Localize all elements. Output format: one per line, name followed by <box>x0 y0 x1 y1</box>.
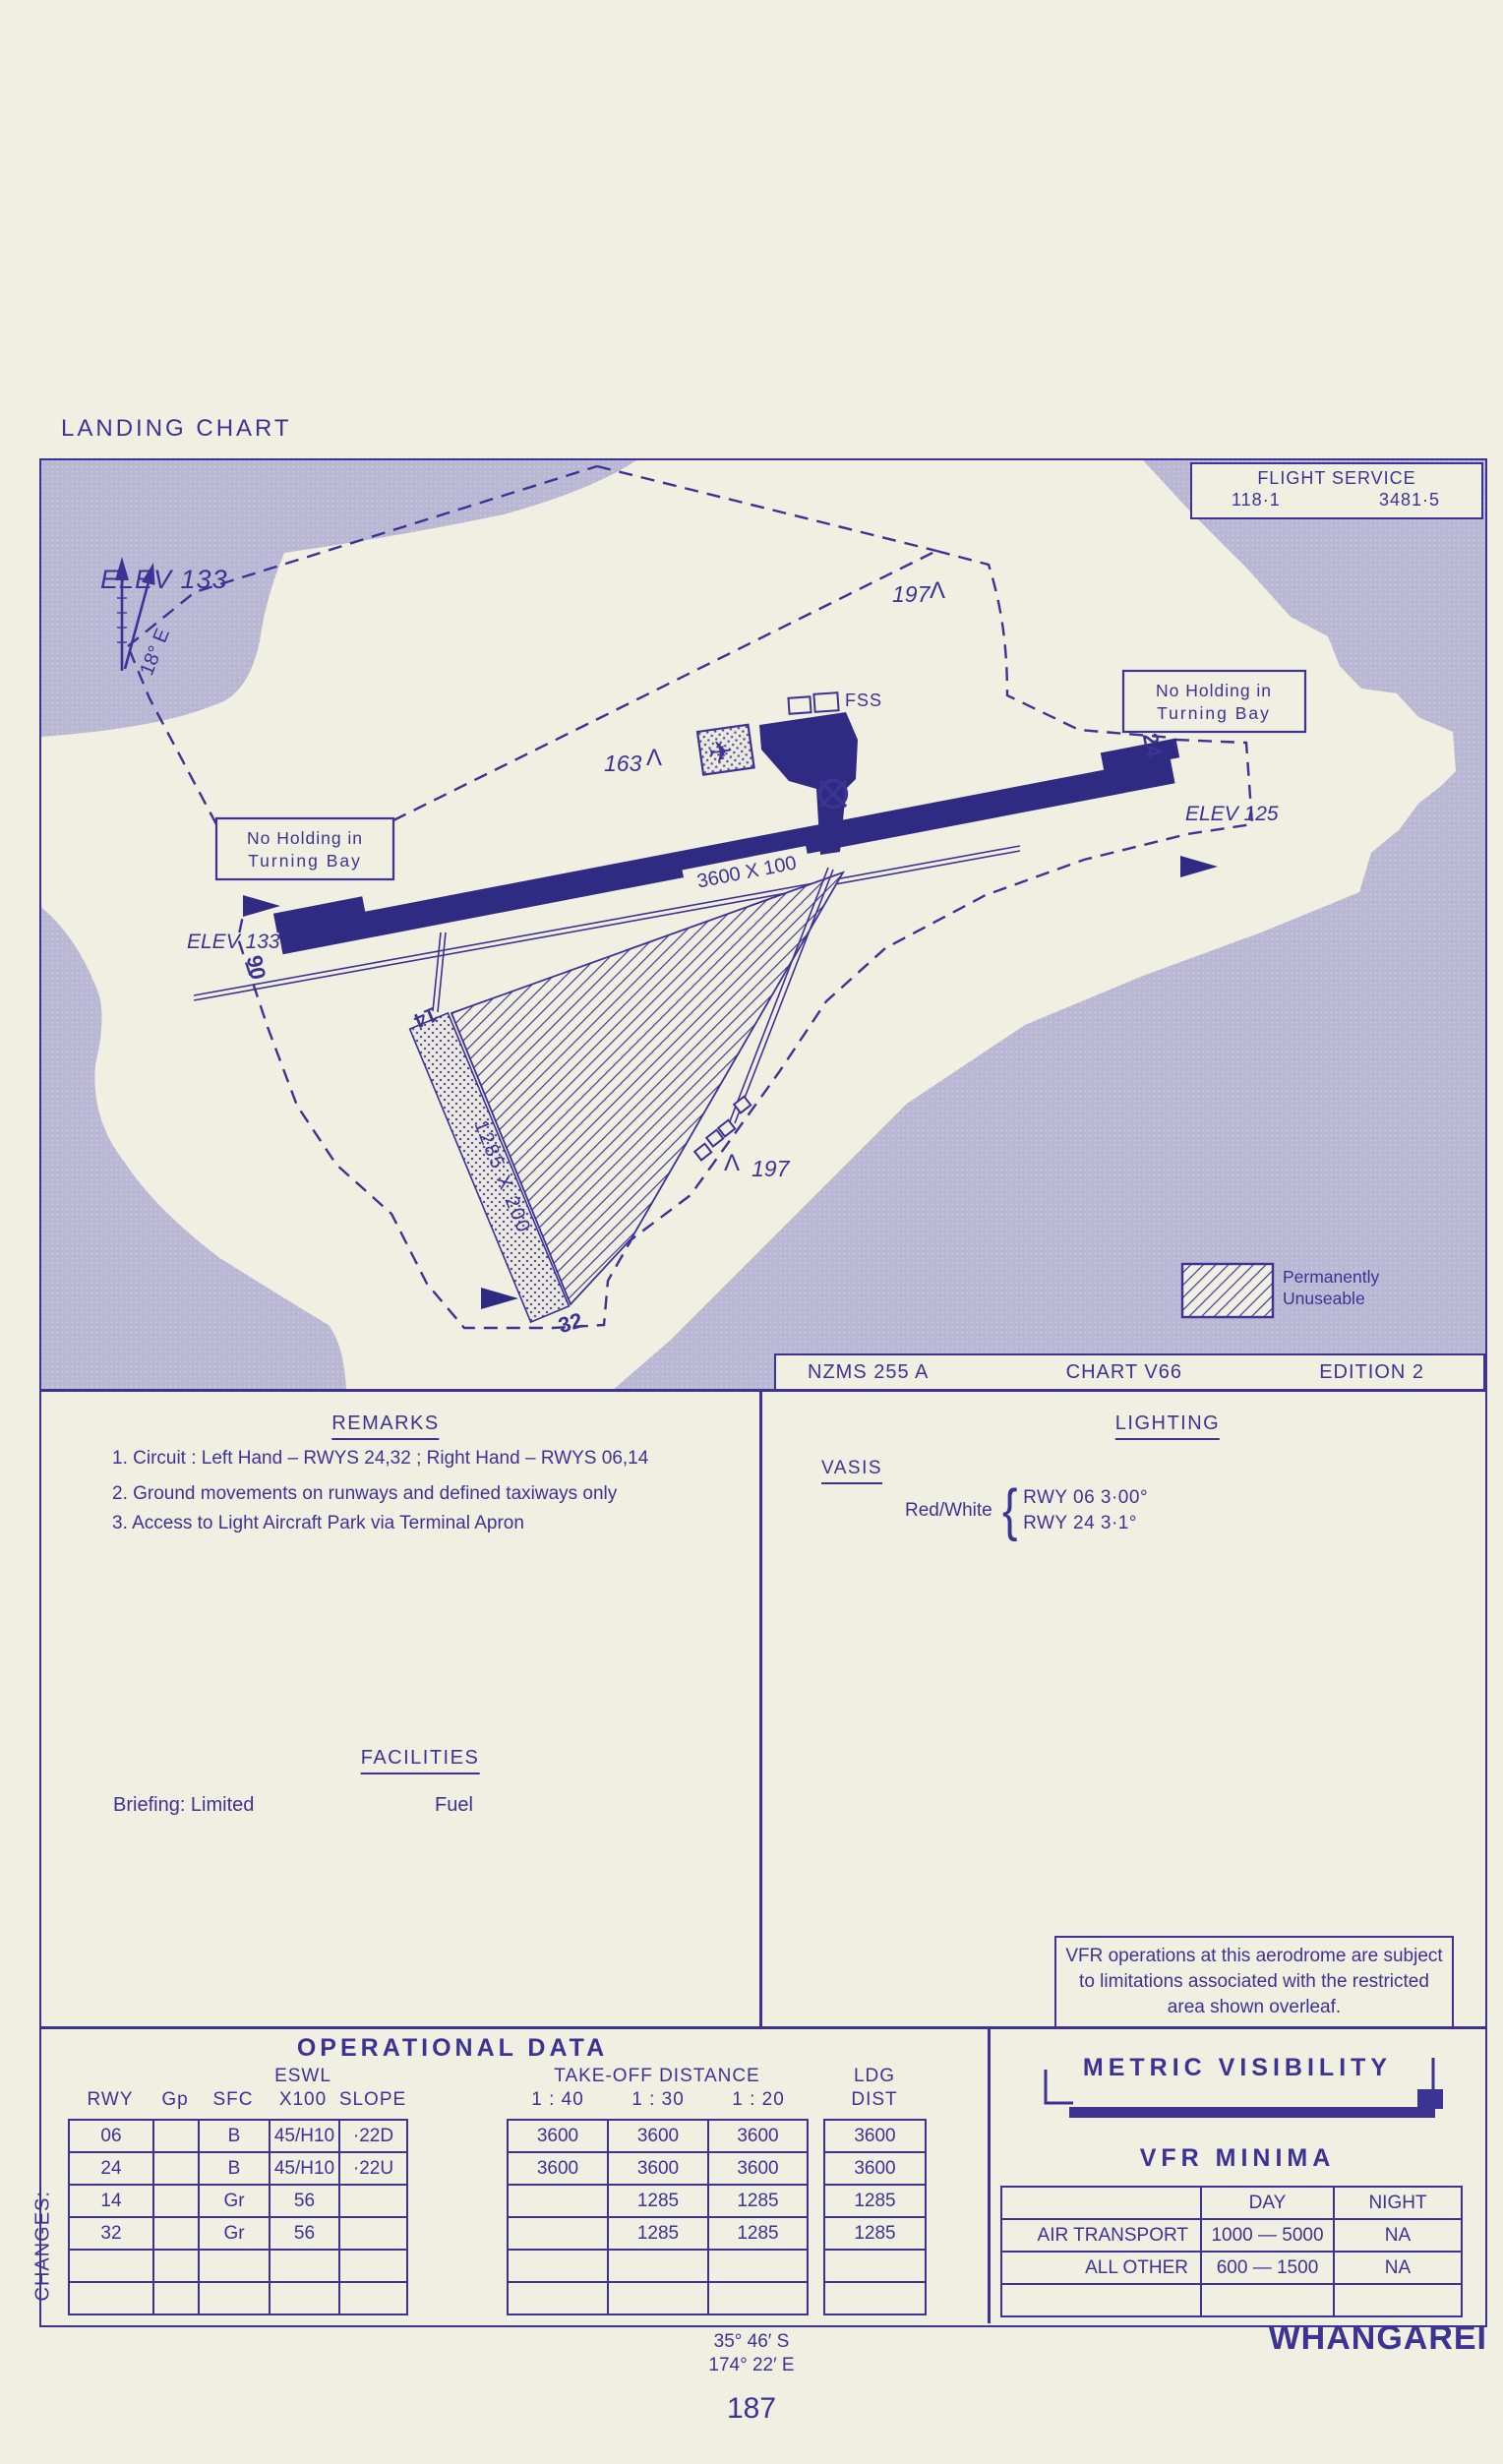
col-eswl2: X100 <box>279 2089 327 2111</box>
chart-frame: FSS ✈ 197 Λ 163 Λ Λ 197 <box>39 458 1487 2327</box>
col-gp: Gp <box>161 2089 188 2111</box>
table-row <box>1001 2284 1462 2316</box>
table-row: 06B45/H10·22D <box>69 2120 407 2152</box>
brace-glyph: { <box>1002 1485 1018 1536</box>
landing-dist-table: 3600 3600 1285 1285 <box>823 2119 927 2315</box>
table-row <box>69 2282 407 2314</box>
table-row: 12851285 <box>508 2217 808 2250</box>
col-tod-20: 1 : 20 <box>732 2089 785 2111</box>
vfr-minima-table: DAYNIGHT AIR TRANSPORT1000 — 5000NA ALL … <box>1000 2186 1463 2317</box>
obstruction-197-top: 197 <box>892 581 932 607</box>
elev-rwy06: ELEV 133 <box>187 931 280 953</box>
vfr-minima-title: VFR MINIMA <box>1140 2144 1336 2173</box>
flight-service-hf: 3481·5 <box>1379 490 1440 511</box>
fss-label: FSS <box>845 691 882 710</box>
arrow-rwy24 <box>1180 856 1218 877</box>
table-row <box>824 2250 926 2282</box>
vfr-note: VFR operations at this aerodrome are sub… <box>1054 1936 1454 2028</box>
light-aircraft-park: ✈ <box>697 725 754 775</box>
rwy06-label: 06 <box>242 953 271 982</box>
table-row: 360036003600 <box>508 2120 808 2152</box>
obstruction-197-low-icon: Λ <box>724 1150 740 1176</box>
chart-number: CHART V66 <box>1066 1361 1182 1384</box>
runway-table: 06B45/H10·22D 24B45/H10·22U 14Gr56 32Gr5… <box>68 2119 408 2315</box>
facilities-fuel: Fuel <box>435 1794 473 1817</box>
obstruction-163-icon: Λ <box>646 745 662 771</box>
takeoff-table: 360036003600 360036003600 12851285 12851… <box>507 2119 809 2315</box>
obstruction-163: 163 <box>604 751 642 776</box>
table-row: 32Gr56 <box>69 2217 407 2250</box>
svg-text:No Holding in: No Holding in <box>247 828 363 848</box>
table-row <box>824 2282 926 2314</box>
table-row: 3600 <box>824 2152 926 2185</box>
col-sfc: SFC <box>213 2089 254 2111</box>
table-row: 1285 <box>824 2217 926 2250</box>
lighting-title: LIGHTING <box>1115 1412 1220 1440</box>
table-row: ALL OTHER600 — 1500NA <box>1001 2252 1462 2284</box>
flight-service-box: FLIGHT SERVICE 118·1 3481·5 <box>1190 462 1483 519</box>
no-holding-box-west: No Holding in Turning Bay <box>216 818 393 879</box>
col-tod-30: 1 : 30 <box>631 2089 685 2111</box>
table-row: 1285 <box>824 2185 926 2217</box>
remarks-item-1: 1. Circuit : Left Hand – RWYS 24,32 ; Ri… <box>112 1448 648 1470</box>
aerodrome-map: FSS ✈ 197 Λ 163 Λ Λ 197 <box>41 460 1485 1391</box>
table-row: 24B45/H10·22U <box>69 2152 407 2185</box>
elev-aerodrome: ELEV 133 <box>100 565 228 594</box>
table-row <box>508 2250 808 2282</box>
facilities-title: FACILITIES <box>361 1747 480 1774</box>
col-eswl: ESWL <box>274 2066 331 2087</box>
vasis-label: VASIS <box>821 1458 882 1484</box>
table-row: 3600 <box>824 2120 926 2152</box>
table-row: DAYNIGHT <box>1001 2187 1462 2219</box>
rwy32-label: 32 <box>556 1307 585 1338</box>
page-title: LANDING CHART <box>61 415 292 443</box>
aircraft-icon: ✈ <box>706 735 735 770</box>
page-number: 187 <box>0 2392 1503 2426</box>
svg-text:No Holding in: No Holding in <box>1156 681 1272 700</box>
remarks-item-3: 3. Access to Light Aircraft Park via Ter… <box>112 1513 524 1534</box>
flight-service-vhf: 118·1 <box>1232 490 1281 511</box>
col-dist: DIST <box>851 2089 897 2111</box>
table-row: AIR TRANSPORT1000 — 5000NA <box>1001 2219 1462 2252</box>
metric-visibility-bracket <box>989 2042 1451 2131</box>
remarks-title: REMARKS <box>331 1412 439 1440</box>
chart-series: NZMS 255 A <box>808 1361 929 1384</box>
facilities-briefing: Briefing: Limited <box>113 1794 254 1817</box>
col-takeoff: TAKE-OFF DISTANCE <box>554 2066 759 2087</box>
no-holding-box-east: No Holding in Turning Bay <box>1123 671 1305 732</box>
col-night: NIGHT <box>1334 2187 1462 2219</box>
arrow-rwy32 <box>481 1288 518 1309</box>
remarks-item-2: 2. Ground movements on runways and defin… <box>112 1483 617 1505</box>
table-row: 12851285 <box>508 2185 808 2217</box>
obstruction-197-top-icon: Λ <box>930 577 945 604</box>
vasis-rwy24: RWY 24 3·1° <box>1023 1511 1148 1536</box>
col-tod-40: 1 : 40 <box>531 2089 584 2111</box>
svg-text:Turning Bay: Turning Bay <box>248 851 362 871</box>
vasis-color: Red/White <box>905 1500 992 1522</box>
table-row <box>69 2250 407 2282</box>
elev-rwy24: ELEV 125 <box>1185 803 1279 825</box>
vasis-detail: Red/White { RWY 06 3·00° RWY 24 3·1° <box>905 1485 1148 1536</box>
chart-id-strip: NZMS 255 A CHART V66 EDITION 2 <box>774 1353 1485 1391</box>
airport-name: WHANGAREI <box>1269 2319 1487 2358</box>
operational-data-title: OPERATIONAL DATA <box>297 2034 608 2063</box>
svg-text:Unuseable: Unuseable <box>1283 1289 1365 1308</box>
vasis-rwy06: RWY 06 3·00° <box>1023 1485 1148 1511</box>
coords-lon: 174° 22′ E <box>0 2355 1503 2376</box>
svg-text:Turning Bay: Turning Bay <box>1157 703 1271 723</box>
table-row: 14Gr56 <box>69 2185 407 2217</box>
obstruction-197-low: 197 <box>751 1156 791 1181</box>
table-row <box>508 2282 808 2314</box>
col-slope: SLOPE <box>339 2089 406 2111</box>
flight-service-title: FLIGHT SERVICE <box>1192 468 1481 489</box>
col-ldg: LDG <box>854 2066 895 2087</box>
fss-buildings <box>788 692 838 714</box>
chart-edition: EDITION 2 <box>1319 1361 1424 1384</box>
table-row: 360036003600 <box>508 2152 808 2185</box>
col-rwy: RWY <box>88 2089 134 2111</box>
col-day: DAY <box>1201 2187 1334 2219</box>
svg-text:Permanently: Permanently <box>1283 1267 1379 1287</box>
